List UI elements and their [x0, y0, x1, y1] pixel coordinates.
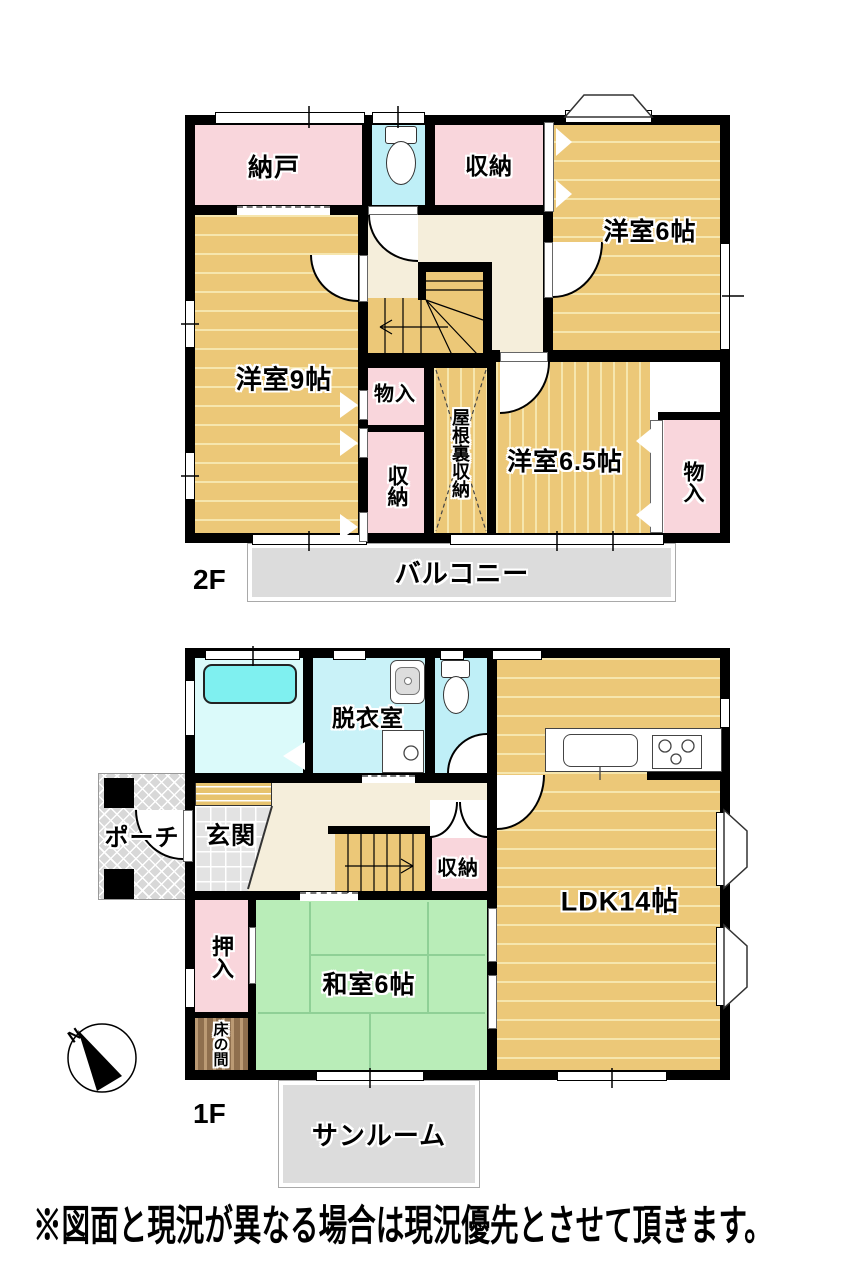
- stairs-1f: [335, 834, 425, 893]
- sliding-door: [488, 975, 497, 1029]
- room-label: 押入: [205, 935, 237, 979]
- floor-plan: 納戸 収納 洋室6帖 洋室9帖 物入 収納 屋根裏収納 洋室6.5帖 物入 バル…: [0, 0, 851, 1280]
- wall: [483, 262, 492, 362]
- window: [185, 452, 195, 500]
- room-label: 洋室6帖: [604, 212, 697, 248]
- room-label: 物入: [677, 461, 707, 503]
- wall: [647, 772, 722, 780]
- wall: [425, 115, 435, 210]
- wall: [418, 272, 426, 300]
- room-label: 収納: [437, 852, 479, 881]
- wall: [487, 362, 496, 533]
- room-label: 納戸: [248, 148, 300, 184]
- sliding-door: [488, 908, 497, 962]
- window: [333, 650, 366, 660]
- wall: [185, 1012, 256, 1018]
- window: [185, 680, 195, 736]
- window: [185, 968, 195, 1008]
- window: [557, 1071, 667, 1081]
- wall: [424, 368, 434, 533]
- washbasin-drain-icon: [404, 677, 412, 685]
- stove-icon: [652, 735, 702, 769]
- door-leaf: [544, 242, 553, 298]
- room-label: 屋根裏収納: [447, 408, 473, 498]
- room-label: LDK14帖: [561, 880, 680, 919]
- wall: [362, 115, 372, 210]
- room-label: 物入: [374, 378, 416, 407]
- wall: [425, 648, 435, 775]
- window: [450, 534, 664, 545]
- closet-door: [359, 428, 368, 458]
- room-label: 脱衣室: [332, 699, 404, 733]
- room-ldk: [497, 658, 720, 1070]
- room-label: 収納: [381, 465, 411, 507]
- window: [720, 243, 730, 350]
- window: [372, 112, 425, 124]
- room-label: 収納: [465, 147, 513, 181]
- door-leaf: [359, 255, 368, 302]
- wall: [328, 826, 430, 834]
- porch-pillar: [104, 869, 134, 899]
- room-label: 洋室9帖: [236, 360, 332, 397]
- floor-label-2f: 2F: [193, 564, 226, 596]
- disclaimer-text: ※図面と現況が異なる場合は現況優先とさせて頂きます。: [33, 1192, 773, 1253]
- window: [205, 650, 300, 660]
- window: [215, 112, 365, 124]
- room-label: ポーチ: [105, 818, 180, 853]
- window: [440, 650, 464, 660]
- window: [716, 812, 726, 886]
- room-label: サンルーム: [312, 1116, 446, 1153]
- toilet-bowl-icon: [386, 141, 416, 185]
- sliding-door: [237, 206, 330, 215]
- porch-pillar: [104, 778, 134, 808]
- door-leaf: [368, 206, 418, 215]
- wall: [658, 412, 720, 420]
- sliding-door: [300, 892, 358, 901]
- window: [720, 698, 730, 728]
- wall: [185, 773, 497, 783]
- room-label: 和室6帖: [323, 965, 416, 1001]
- hall-2f: [368, 262, 418, 300]
- stairs-2f: [368, 298, 483, 355]
- wall: [358, 353, 496, 368]
- window: [185, 300, 195, 348]
- closet-door: [359, 390, 368, 420]
- stairs-2f: [426, 272, 483, 300]
- room-label: バルコニー: [395, 554, 529, 591]
- toilet-bowl-icon: [443, 676, 469, 714]
- compass-icon: N: [58, 1014, 146, 1102]
- wall: [425, 834, 432, 893]
- window: [716, 927, 726, 1006]
- wall: [418, 262, 492, 272]
- room-label: 玄関: [206, 816, 256, 851]
- hall-2f: [490, 262, 543, 352]
- wall: [487, 350, 500, 362]
- door-leaf: [500, 352, 548, 362]
- sliding-door: [362, 775, 415, 783]
- window: [565, 110, 652, 123]
- room-label: 洋室6.5帖: [507, 442, 623, 478]
- sliding-door: [249, 927, 256, 984]
- window: [252, 534, 367, 545]
- window: [492, 650, 542, 660]
- closet-door: [544, 122, 554, 212]
- closet-door: [359, 512, 368, 542]
- bathtub-icon: [203, 664, 297, 704]
- washer-icon: [382, 730, 424, 773]
- room-label: 床の間: [210, 1022, 231, 1067]
- wall: [543, 350, 730, 362]
- window: [316, 1071, 424, 1081]
- front-door-leaf: [183, 810, 193, 862]
- floor-label-1f: 1F: [193, 1098, 226, 1130]
- kitchen-sink-icon: [563, 734, 638, 767]
